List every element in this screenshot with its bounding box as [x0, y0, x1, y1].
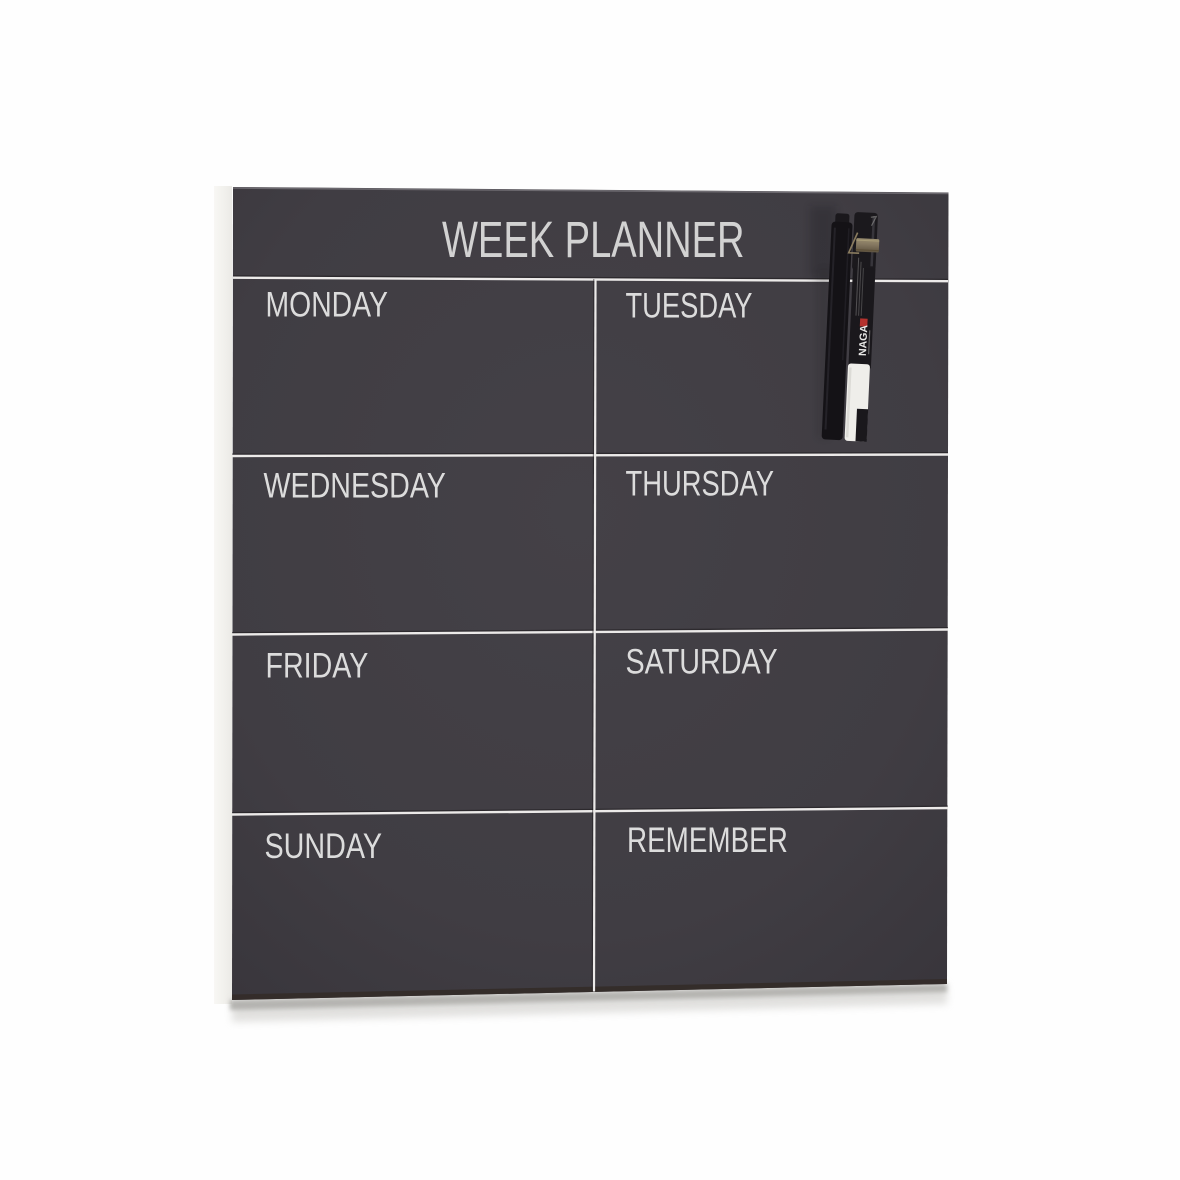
- svg-text:WEDNESDAY: WEDNESDAY: [264, 467, 446, 506]
- svg-text:SATURDAY: SATURDAY: [626, 642, 778, 681]
- svg-text:WEEK PLANNER: WEEK PLANNER: [442, 211, 745, 268]
- svg-text:REMEMBER: REMEMBER: [627, 821, 788, 860]
- svg-text:TUESDAY: TUESDAY: [626, 287, 753, 326]
- svg-text:MONDAY: MONDAY: [266, 286, 388, 325]
- svg-text:FRIDAY: FRIDAY: [266, 646, 369, 685]
- svg-text:THURSDAY: THURSDAY: [626, 464, 775, 503]
- svg-text:SUNDAY: SUNDAY: [265, 827, 383, 866]
